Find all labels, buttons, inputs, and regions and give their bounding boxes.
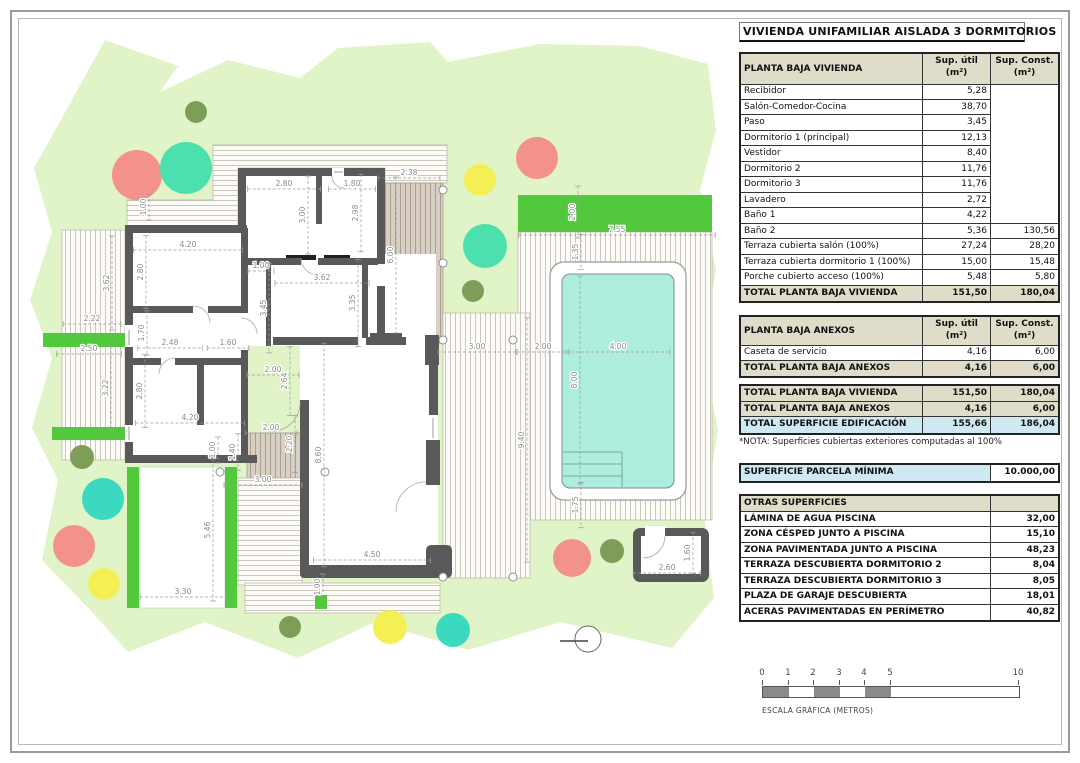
anexos-rows: Caseta de servicio4,166,00TOTAL PLANTA B… — [741, 345, 1058, 376]
table-row: TOTAL PLANTA BAJA ANEXOS4,166,00 — [741, 361, 1058, 377]
table-row: ZONA CÉSPED JUNTO A PISCINA15,10 — [741, 527, 1058, 543]
row-label: Baño 2 — [741, 224, 923, 240]
sup-util-value: 4,22 — [923, 208, 991, 224]
table-row: Baño 14,22 — [741, 208, 1058, 224]
row-label: Dormitorio 3 — [741, 177, 923, 193]
sup-const-value: 186,04 — [991, 417, 1058, 433]
dimension-label: 1.60 — [683, 544, 692, 561]
sup-const-value — [991, 100, 1058, 116]
sup-util-value: 11,76 — [923, 177, 991, 193]
sup-util-value: 4,16 — [923, 402, 991, 418]
area-value: 32,00 — [991, 512, 1058, 528]
col-header-sup-const: Sup. Const. (m²) — [991, 317, 1058, 346]
row-label: Dormitorio 2 — [741, 162, 923, 178]
table-row: Paso3,45 — [741, 115, 1058, 131]
sup-const-value: 5,80 — [991, 270, 1058, 286]
dimension-label: 1.35 — [571, 243, 580, 260]
dimension-label: 2.80 — [276, 179, 293, 188]
dimension-label: 4.20 — [180, 240, 197, 249]
table-row: TOTAL PLANTA BAJA VIVIENDA151,50180,04 — [741, 386, 1058, 402]
row-label: Recibidor — [741, 84, 923, 100]
table-row: PLAZA DE GARAJE DESCUBIERTA18,01 — [741, 589, 1058, 605]
area-value: 18,01 — [991, 589, 1058, 605]
sup-util-value: 38,70 — [923, 100, 991, 116]
table-row: Dormitorio 1 (principal)12,13 — [741, 131, 1058, 147]
sup-util-value: 27,24 — [923, 239, 991, 255]
dimension-label: 5.46 — [203, 521, 212, 538]
row-label: Terraza cubierta salón (100%) — [741, 239, 923, 255]
table-row: ACERAS PAVIMENTADAS EN PERÍMETRO40,82 — [741, 605, 1058, 621]
dimension-label: 8.00 — [570, 371, 579, 388]
tree-icon — [279, 616, 301, 638]
scale-tick — [864, 680, 865, 685]
col-header-sup-const: Sup. Const. (m²) — [991, 54, 1058, 85]
sup-util-value: 3,45 — [923, 115, 991, 131]
deck-below-salon — [245, 583, 440, 613]
scale-segment-filled — [865, 687, 891, 697]
parcela-label: SUPERFICIE PARCELA MÍNIMA — [741, 465, 991, 481]
table-row: TOTAL PLANTA BAJA VIVIENDA151,50180,04 — [741, 286, 1058, 302]
sup-const-value — [991, 131, 1058, 147]
table-row: LÁMINA DE AGUA PISCINA32,00 — [741, 512, 1058, 528]
row-label: ZONA CÉSPED JUNTO A PISCINA — [741, 527, 991, 543]
dimension-label: 8.60 — [314, 446, 323, 463]
sup-util-value: 12,13 — [923, 131, 991, 147]
table-row: TOTAL SUPERFICIE EDIFICACIÓN155,66186,04 — [741, 417, 1058, 433]
dimension-label: 1.40 — [228, 443, 237, 460]
row-label: TERRAZA DESCUBIERTA DORMITORIO 2 — [741, 558, 991, 574]
dimension-label: 3.00 — [255, 475, 272, 484]
dimension-label: 3.35 — [348, 294, 357, 311]
porch-post — [439, 573, 447, 581]
table-otras-superficies: OTRAS SUPERFICIES LÁMINA DE AGUA PISCINA… — [739, 494, 1060, 622]
row-label: Paso — [741, 115, 923, 131]
sup-util-value: 151,50 — [923, 286, 991, 302]
dimension-label: 1.00 — [139, 198, 148, 215]
scale-tick — [813, 680, 814, 685]
sup-const-value — [991, 177, 1058, 193]
dimension-label: 2.38 — [401, 168, 418, 177]
porch-post — [216, 468, 224, 476]
sheet-title: VIVIENDA UNIFAMILIAR AISLADA 3 DORMITORI… — [739, 22, 1025, 42]
row-label: Baño 1 — [741, 208, 923, 224]
row-label: Terraza cubierta dormitorio 1 (100%) — [741, 255, 923, 271]
row-label: Lavadero — [741, 193, 923, 209]
dimension-label: 3.62 — [314, 273, 331, 282]
table-header: PLANTA BAJA VIVIENDA — [741, 54, 923, 85]
sup-const-value — [991, 162, 1058, 178]
area-value: 8,05 — [991, 574, 1058, 590]
table-planta-baja-anexos: PLANTA BAJA ANEXOS Sup. útil (m²) Sup. C… — [739, 315, 1060, 378]
table-totales: TOTAL PLANTA BAJA VIVIENDA151,50180,04TO… — [739, 384, 1060, 435]
benchmark-marker — [560, 626, 601, 652]
sup-util-value: 5,28 — [923, 84, 991, 100]
table-row: Dormitorio 311,76 — [741, 177, 1058, 193]
table-row: TERRAZA DESCUBIERTA DORMITORIO 38,05 — [741, 574, 1058, 590]
table-parcela-minima: SUPERFICIE PARCELA MÍNIMA 10.000,00 — [739, 463, 1060, 483]
porch-post — [509, 573, 517, 581]
table-row: Recibidor5,28 — [741, 84, 1058, 100]
scale-tick — [788, 680, 789, 685]
sup-util-value: 4,16 — [923, 345, 991, 361]
dimension-label: 9.40 — [517, 431, 526, 448]
area-value: 8,04 — [991, 558, 1058, 574]
tree-icon — [436, 613, 470, 647]
row-label: PLAZA DE GARAJE DESCUBIERTA — [741, 589, 991, 605]
dimension-label: 2.98 — [351, 204, 360, 221]
header-empty-cell — [991, 496, 1058, 512]
sup-const-value — [991, 208, 1058, 224]
scale-tick-label: 4 — [861, 668, 866, 678]
table-header: OTRAS SUPERFICIES — [741, 496, 991, 512]
dimension-label: 2.50 — [81, 344, 98, 353]
tree-icon — [464, 164, 496, 196]
table-row: TOTAL PLANTA BAJA ANEXOS4,166,00 — [741, 402, 1058, 418]
dimension-label: 3.62 — [102, 274, 111, 291]
sup-const-value: 28,20 — [991, 239, 1058, 255]
dimension-label: 2.60 — [659, 563, 676, 572]
tree-icon — [600, 539, 624, 563]
graphic-scale: ESCALA GRÁFICA (METROS) 01234510 — [762, 668, 1032, 718]
sup-const-value: 130,56 — [991, 224, 1058, 240]
dimension-label: 1.00 — [313, 578, 322, 595]
tree-icon — [160, 142, 212, 194]
scale-tick-label: 3 — [836, 668, 841, 678]
hedge-garage-left — [127, 467, 139, 608]
site-plan: 2.801.802.384.201.003.622.222.502.481.60… — [0, 0, 730, 763]
table-row: Porche cubierto acceso (100%)5,485,80 — [741, 270, 1058, 286]
scale-tick — [1018, 680, 1019, 685]
dimension-label: 3.22 — [101, 379, 110, 396]
col-header-sup-util: Sup. útil (m²) — [923, 54, 991, 85]
row-label: TERRAZA DESCUBIERTA DORMITORIO 3 — [741, 574, 991, 590]
sup-const-value — [991, 193, 1058, 209]
dimension-label: 6.00 — [386, 246, 395, 263]
otras-rows: LÁMINA DE AGUA PISCINA32,00ZONA CÉSPED J… — [741, 512, 1058, 621]
dimension-label: 1.70 — [137, 324, 146, 341]
row-label: Salón-Comedor-Cocina — [741, 100, 923, 116]
sup-const-value — [991, 115, 1058, 131]
scale-segment-filled — [763, 687, 789, 697]
row-label: TOTAL PLANTA BAJA ANEXOS — [741, 361, 923, 377]
table-row: TERRAZA DESCUBIERTA DORMITORIO 28,04 — [741, 558, 1058, 574]
sup-util-value: 11,76 — [923, 162, 991, 178]
row-label: Porche cubierto acceso (100%) — [741, 270, 923, 286]
area-value: 48,23 — [991, 543, 1058, 559]
scale-tick-label: 2 — [810, 668, 815, 678]
porch-post — [439, 336, 447, 344]
dimension-label: 4.50 — [364, 550, 381, 559]
dimension-label: 4.20 — [182, 413, 199, 422]
area-value: 15,10 — [991, 527, 1058, 543]
sup-const-value: 180,04 — [991, 286, 1058, 302]
sup-util-value: 4,16 — [923, 361, 991, 377]
area-value: 40,82 — [991, 605, 1058, 621]
tree-icon — [373, 610, 407, 644]
row-label: LÁMINA DE AGUA PISCINA — [741, 512, 991, 528]
sup-util-value: 155,66 — [923, 417, 991, 433]
area-tables-panel: VIVIENDA UNIFAMILIAR AISLADA 3 DORMITORI… — [739, 0, 1058, 763]
scale-caption: ESCALA GRÁFICA (METROS) — [762, 706, 873, 715]
tree-icon — [553, 539, 591, 577]
dimension-label: 2.00 — [535, 342, 552, 351]
dimension-label: 1.80 — [344, 179, 361, 188]
deck-below-porch — [238, 478, 302, 585]
sup-const-value — [991, 84, 1058, 100]
table-row: Terraza cubierta dormitorio 1 (100%)15,0… — [741, 255, 1058, 271]
service-shed — [633, 526, 709, 582]
scale-tick-label: 10 — [1013, 668, 1024, 678]
parcela-value: 10.000,00 — [991, 465, 1058, 481]
table-row: Caseta de servicio4,166,00 — [741, 345, 1058, 361]
scale-tick-label: 1 — [785, 668, 790, 678]
dimension-label: 2.20 — [285, 435, 294, 452]
tree-icon — [462, 280, 484, 302]
dimension-label: 1.75 — [571, 496, 580, 513]
sup-const-value: 15,48 — [991, 255, 1058, 271]
sup-const-value: 180,04 — [991, 386, 1058, 402]
row-label: ZONA PAVIMENTADA JUNTO A PISCINA — [741, 543, 991, 559]
sup-const-value: 6,00 — [991, 345, 1058, 361]
dimension-label: 3.45 — [259, 299, 268, 316]
tree-icon — [463, 224, 507, 268]
porch-post — [321, 468, 329, 476]
scale-tick-label: 0 — [759, 668, 764, 678]
dimension-label: 2.00 — [568, 203, 577, 220]
sup-const-value: 6,00 — [991, 402, 1058, 418]
dimension-label: 3.00 — [298, 206, 307, 223]
row-label: TOTAL PLANTA BAJA VIVIENDA — [741, 386, 923, 402]
tree-icon — [112, 150, 162, 200]
row-label: Dormitorio 1 (principal) — [741, 131, 923, 147]
tree-icon — [53, 525, 95, 567]
sup-util-value: 151,50 — [923, 386, 991, 402]
row-label: TOTAL PLANTA BAJA ANEXOS — [741, 402, 923, 418]
dimension-label: 2.80 — [135, 382, 144, 399]
dimension-label: 1.00 — [208, 441, 217, 458]
tree-icon — [70, 445, 94, 469]
sup-util-value: 15,00 — [923, 255, 991, 271]
table-row: ZONA PAVIMENTADA JUNTO A PISCINA48,23 — [741, 543, 1058, 559]
dimension-label: 2.48 — [162, 338, 179, 347]
dimension-label: 7.55 — [609, 225, 626, 234]
row-label: TOTAL SUPERFICIE EDIFICACIÓN — [741, 417, 923, 433]
table-row: Terraza cubierta salón (100%)27,2428,20 — [741, 239, 1058, 255]
sup-const-value: 6,00 — [991, 361, 1058, 377]
table-row: Vestidor8,40 — [741, 146, 1058, 162]
plan-sheet: 2.801.802.384.201.003.622.222.502.481.60… — [0, 0, 1080, 763]
sup-util-value: 8,40 — [923, 146, 991, 162]
porch-post — [509, 336, 517, 344]
sup-util-value: 5,48 — [923, 270, 991, 286]
dimension-label: 1.60 — [220, 338, 237, 347]
table-planta-baja-vivienda: PLANTA BAJA VIVIENDA Sup. útil (m²) Sup.… — [739, 52, 1060, 303]
table-row: Dormitorio 211,76 — [741, 162, 1058, 178]
scale-tick — [890, 680, 891, 685]
dimension-label: 2.22 — [84, 314, 101, 323]
row-label: Caseta de servicio — [741, 345, 923, 361]
dimension-label: 2.80 — [136, 263, 145, 280]
vivienda-rows: Recibidor5,28Salón-Comedor-Cocina38,70Pa… — [741, 84, 1058, 301]
row-label: ACERAS PAVIMENTADAS EN PERÍMETRO — [741, 605, 991, 621]
scale-tick-label: 5 — [887, 668, 892, 678]
scale-tick — [839, 680, 840, 685]
col-header-sup-util: Sup. útil (m²) — [923, 317, 991, 346]
sup-util-value: 2,72 — [923, 193, 991, 209]
hedge-left-2 — [52, 427, 125, 440]
dimension-label: 4.00 — [610, 342, 627, 351]
dimension-label: 3.30 — [175, 587, 192, 596]
scale-tick — [762, 680, 763, 685]
porch-post — [439, 259, 447, 267]
tree-icon — [516, 137, 558, 179]
scale-bar — [762, 686, 1020, 698]
porch-post — [439, 186, 447, 194]
hedge-small — [315, 595, 327, 609]
table-row: Lavadero2,72 — [741, 193, 1058, 209]
note-text: *NOTA: Superficies cubiertas exteriores … — [739, 437, 1056, 447]
table-header: PLANTA BAJA ANEXOS — [741, 317, 923, 346]
dimension-label: 1.00 — [253, 261, 270, 270]
row-label: TOTAL PLANTA BAJA VIVIENDA — [741, 286, 923, 302]
sup-const-value — [991, 146, 1058, 162]
tree-icon — [82, 478, 124, 520]
resumen-rows: TOTAL PLANTA BAJA VIVIENDA151,50180,04TO… — [741, 386, 1058, 433]
row-label: Vestidor — [741, 146, 923, 162]
dimension-label: 2.00 — [263, 423, 280, 432]
tree-icon — [88, 568, 120, 600]
sup-util-value: 5,36 — [923, 224, 991, 240]
scale-segment-filled — [814, 687, 840, 697]
table-row: Baño 25,36130,56 — [741, 224, 1058, 240]
table-row: Salón-Comedor-Cocina38,70 — [741, 100, 1058, 116]
dimension-label: 2.64 — [280, 372, 289, 389]
tree-icon — [185, 101, 207, 123]
dimension-label: 3.00 — [469, 342, 486, 351]
hedge-garage-right — [225, 467, 237, 608]
